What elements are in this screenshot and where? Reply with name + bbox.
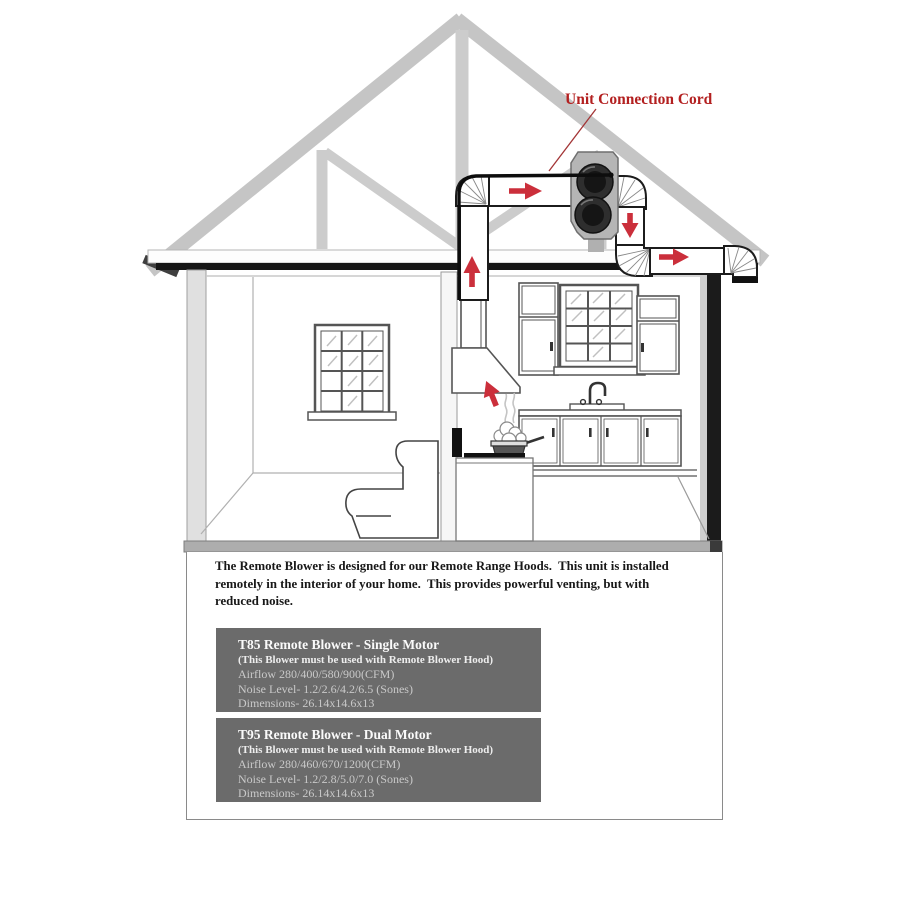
- upper-cabinet-right: [637, 296, 679, 374]
- eave-horizontal-duct: [650, 248, 726, 274]
- stove-top: [464, 453, 525, 458]
- countertop: [519, 410, 681, 416]
- remote-blower-diagram-page: Unit Connection Cord The Remote Blower i…: [0, 0, 900, 900]
- steam: [505, 394, 507, 424]
- sink-and-faucet: [570, 383, 624, 412]
- steam: [513, 393, 515, 423]
- door-handle: [589, 428, 592, 437]
- left-wall: [187, 270, 206, 548]
- description-text: The Remote Blower is designed for our Re…: [215, 558, 695, 611]
- base-cabinets: [519, 410, 697, 476]
- cord-callout-label: Unit Connection Cord: [565, 91, 713, 108]
- cord-outlet-box: [452, 428, 462, 457]
- product-noise: Noise Level- 1.2/2.6/4.2/6.5 (Sones): [238, 682, 531, 697]
- house-cross-section-diagram: Unit Connection Cord: [0, 0, 900, 560]
- info-panel: The Remote Blower is designed for our Re…: [186, 552, 723, 820]
- vent-outlet-cap: [732, 277, 758, 283]
- product-airflow: Airflow 280/400/580/900(CFM): [238, 667, 531, 682]
- door-handle: [606, 428, 609, 437]
- right-wall-trim: [700, 262, 707, 548]
- duct-elbow-bottom: [616, 245, 652, 276]
- remote-blower-unit: [571, 152, 618, 252]
- product-note: (This Blower must be used with Remote Bl…: [238, 743, 531, 757]
- kitchen-island: [456, 458, 533, 541]
- floor-end-cap: [710, 541, 722, 552]
- duct-elbow-top-left: [456, 176, 489, 206]
- living-room-window: [308, 325, 396, 420]
- window-sill: [554, 367, 645, 375]
- door-handle: [552, 428, 555, 437]
- blower-mount: [588, 238, 604, 252]
- range-hood: [452, 298, 520, 393]
- living-room: [201, 277, 440, 538]
- cabinet-handle: [641, 343, 644, 352]
- sofa: [346, 441, 438, 538]
- product-title: T85 Remote Blower - Single Motor: [238, 636, 531, 653]
- door-handle: [646, 428, 649, 437]
- kitchen: [452, 283, 709, 541]
- left-rafter: [150, 19, 461, 271]
- pot-rim: [491, 441, 527, 446]
- floor: [184, 541, 722, 552]
- cabinet-handle: [550, 342, 553, 351]
- kitchen-window: [554, 285, 645, 375]
- upper-cabinet-left: [519, 283, 558, 375]
- product-box-t95: T95 Remote Blower - Dual Motor (This Blo…: [216, 718, 541, 802]
- left-web-diagonal: [325, 152, 459, 246]
- product-dimensions: Dimensions- 26.14x14.6x13: [238, 786, 531, 801]
- window-sill: [308, 412, 396, 420]
- hood-chimney: [461, 298, 486, 348]
- product-airflow: Airflow 280/460/670/1200(CFM): [238, 757, 531, 772]
- product-box-t85: T85 Remote Blower - Single Motor (This B…: [216, 628, 541, 712]
- product-note: (This Blower must be used with Remote Bl…: [238, 653, 531, 667]
- product-dimensions: Dimensions- 26.14x14.6x13: [238, 696, 531, 711]
- product-title: T95 Remote Blower - Dual Motor: [238, 726, 531, 743]
- right-wall: [707, 262, 721, 548]
- floor-perspective-line: [201, 473, 253, 534]
- product-noise: Noise Level- 1.2/2.8/5.0/7.0 (Sones): [238, 772, 531, 787]
- interior-wall: [441, 272, 457, 548]
